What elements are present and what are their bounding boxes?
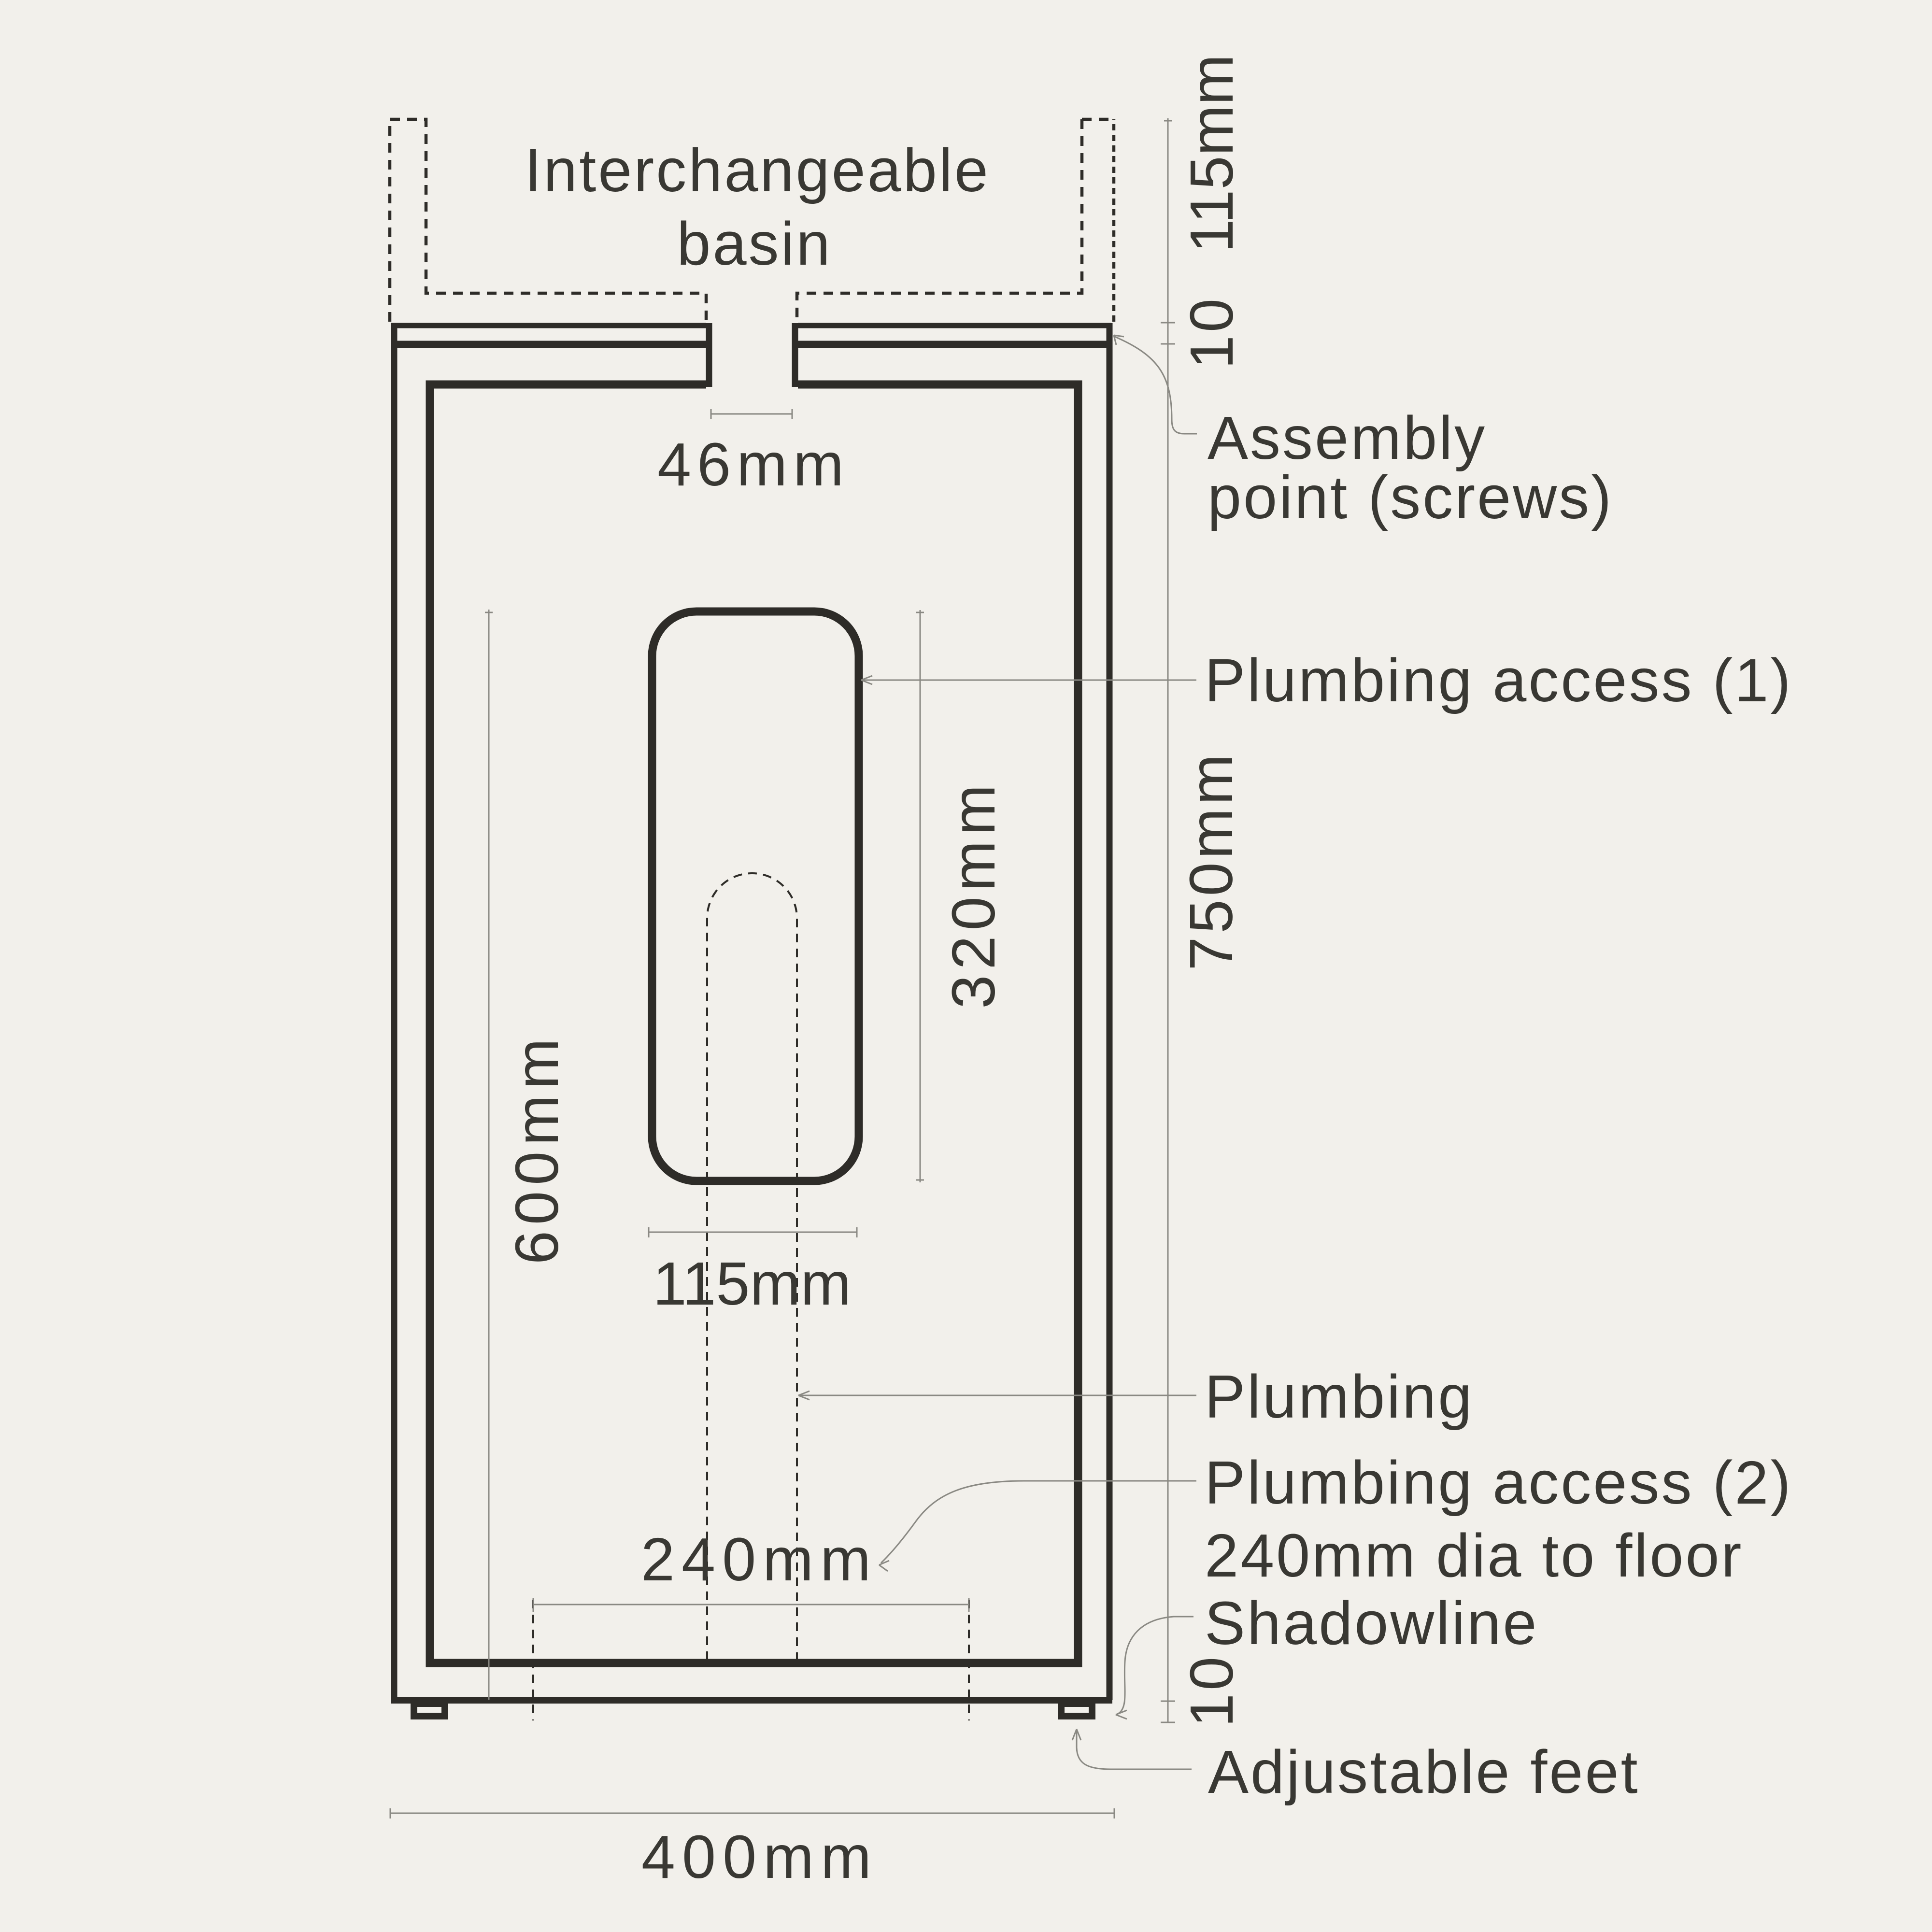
svg-text:basin: basin	[677, 210, 832, 278]
svg-text:Adjustable feet: Adjustable feet	[1208, 1738, 1640, 1806]
svg-text:point (screws): point (screws)	[1207, 463, 1613, 531]
svg-text:320mm: 320mm	[939, 779, 1008, 1009]
svg-text:240mm: 240mm	[641, 1525, 878, 1593]
svg-text:46mm: 46mm	[657, 430, 850, 498]
svg-text:750mm: 750mm	[1177, 751, 1245, 970]
svg-text:Plumbing access (1): Plumbing access (1)	[1205, 646, 1792, 714]
svg-text:Assembly: Assembly	[1207, 404, 1487, 472]
svg-text:Shadowline: Shadowline	[1205, 1589, 1538, 1657]
svg-text:10: 10	[1178, 296, 1246, 369]
svg-text:600mm: 600mm	[503, 1033, 571, 1264]
svg-text:Plumbing: Plumbing	[1205, 1363, 1474, 1431]
svg-text:Plumbing access (2): Plumbing access (2)	[1205, 1449, 1792, 1517]
svg-text:115mm: 115mm	[653, 1250, 852, 1318]
svg-text:10: 10	[1178, 1654, 1246, 1727]
svg-text:400mm: 400mm	[641, 1823, 878, 1891]
svg-text:240mm dia to floor: 240mm dia to floor	[1205, 1521, 1744, 1590]
svg-text:Interchangeable: Interchangeable	[525, 136, 990, 204]
svg-text:115mm: 115mm	[1178, 55, 1246, 253]
